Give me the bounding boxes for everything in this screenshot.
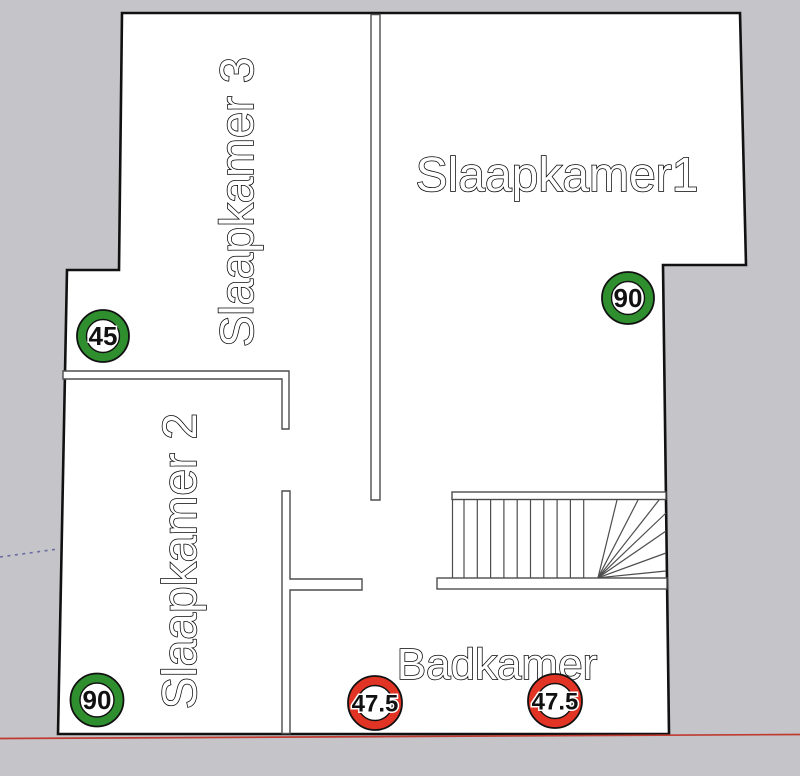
measurement-badge-90-right: 90: [602, 272, 654, 324]
stair-top-rail: [452, 492, 666, 500]
room-label-slaapkamer2: Slaapkamer 2: [154, 413, 207, 709]
wall-slaapkamer3-slaapkamer1: [371, 15, 380, 501]
badge-value: 47.5: [532, 689, 579, 716]
badge-value: 47.5: [352, 691, 399, 718]
room-label-slaapkamer1: Slaapkamer1: [416, 149, 699, 202]
sketchup-viewport[interactable]: Slaapkamer 3 Slaapkamer1 Slaapkamer 2 Ba…: [0, 0, 800, 776]
measurement-badge-90-left: 90: [71, 674, 124, 727]
badge-value: 90: [614, 283, 643, 313]
badge-value: 90: [83, 685, 112, 715]
measurement-badge-47-5-left: 47.5: [348, 676, 402, 730]
stair-bottom-rail: [437, 578, 667, 589]
measurement-badge-45: 45: [77, 310, 129, 362]
room-label-slaapkamer3: Slaapkamer 3: [210, 57, 263, 347]
dotted-axis-line: [0, 549, 58, 557]
badge-value: 45: [89, 321, 118, 351]
measurement-badge-47-5-right: 47.5: [528, 674, 582, 728]
drawing-canvas[interactable]: Slaapkamer 3 Slaapkamer1 Slaapkamer 2 Ba…: [0, 0, 800, 776]
